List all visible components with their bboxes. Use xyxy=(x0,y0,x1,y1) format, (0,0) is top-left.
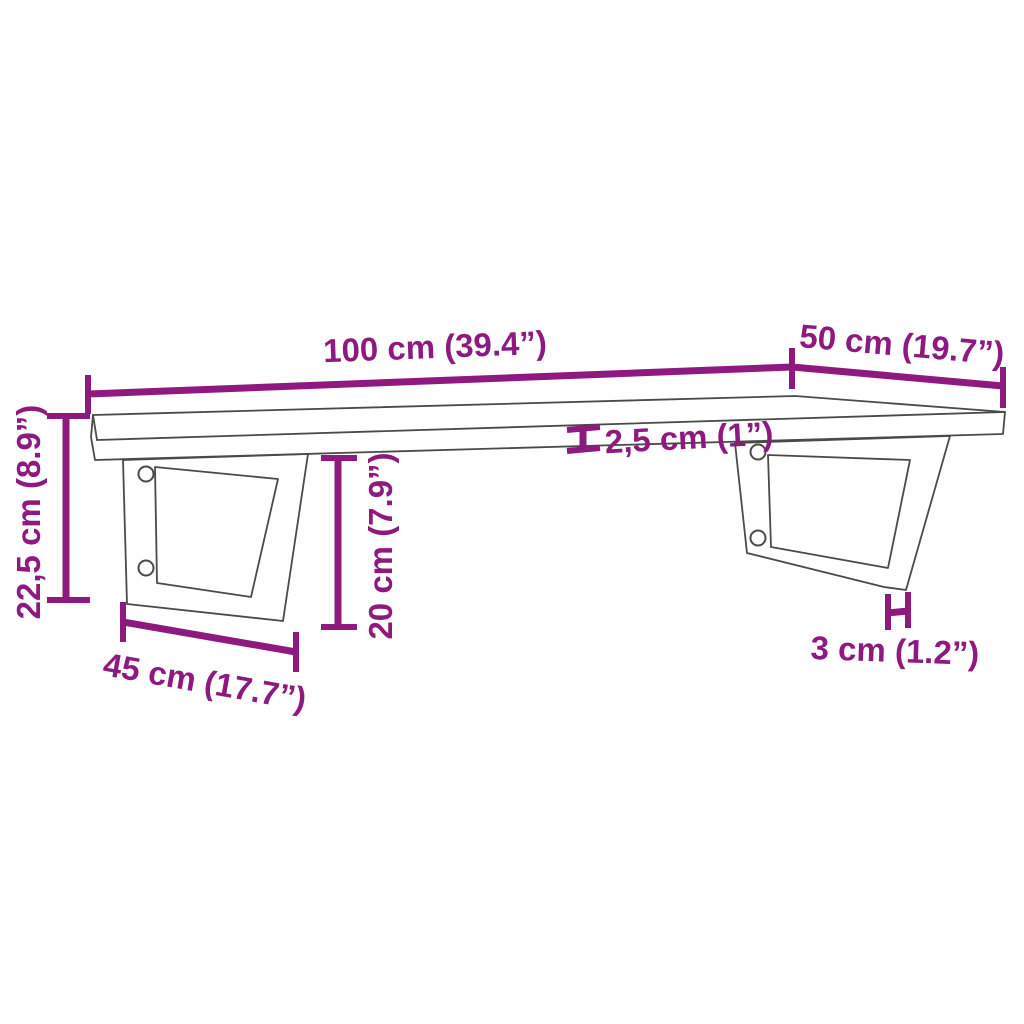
right-bracket-screw-hole-bottom xyxy=(751,531,766,546)
left-bracket-screw-hole-top xyxy=(139,467,154,482)
left-bracket xyxy=(123,454,308,621)
product-dimension-diagram: 100 cm (39.4”) 50 cm (19.7”) 2,5 cm (1”)… xyxy=(0,0,1024,1024)
right-bracket xyxy=(735,436,950,590)
total-height-dimension-label: 22,5 cm (8.9”) xyxy=(10,405,47,620)
bracket-height-dimension-label: 20 cm (7.9”) xyxy=(362,452,399,639)
left-bracket-screw-hole-bottom xyxy=(139,561,154,576)
dimension-depth: 50 cm (19.7”) xyxy=(792,317,1006,408)
leg-thickness-dimension-label: 3 cm (1.2”) xyxy=(810,629,980,672)
leg-thickness-dimension-line xyxy=(888,611,908,613)
width-dimension-line xyxy=(88,367,792,394)
dimension-total-height: 22,5 cm (8.9”) xyxy=(10,405,90,620)
thickness-cap-top xyxy=(567,427,600,430)
width-dimension-label: 100 cm (39.4”) xyxy=(322,324,547,370)
dimension-leg-thickness: 3 cm (1.2”) xyxy=(810,592,980,672)
depth-dimension-label: 50 cm (19.7”) xyxy=(798,317,1006,372)
thickness-cap-bottom xyxy=(567,448,600,451)
dimension-bracket-height: 20 cm (7.9”) xyxy=(321,452,399,639)
right-bracket-opening xyxy=(768,455,910,568)
bracket-width-dimension-line xyxy=(123,622,296,652)
bracket-width-dimension-label: 45 cm (17.7”) xyxy=(101,645,310,717)
shelf-dimension-drawing: 100 cm (39.4”) 50 cm (19.7”) 2,5 cm (1”)… xyxy=(0,0,1024,1024)
depth-dimension-line xyxy=(792,367,1003,386)
